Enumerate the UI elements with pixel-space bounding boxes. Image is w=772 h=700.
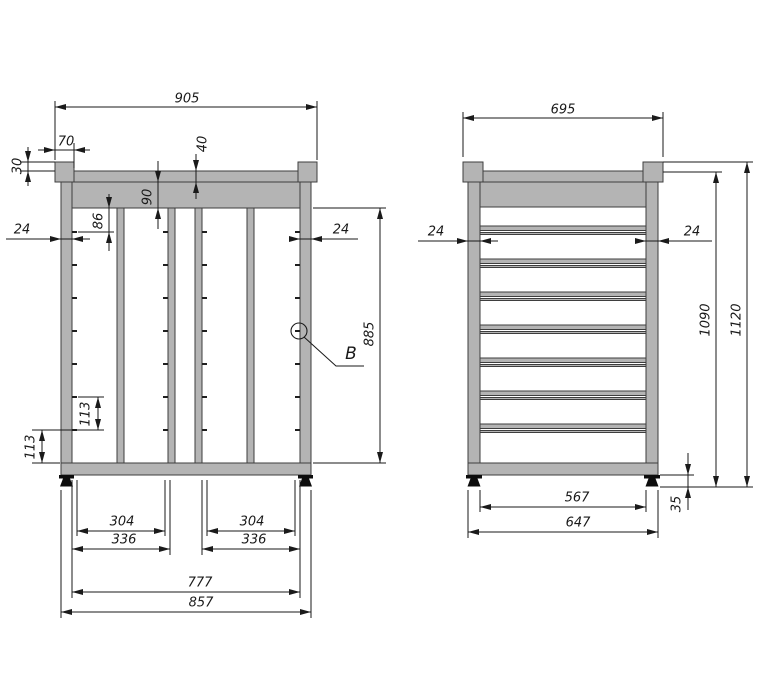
hook-tick	[295, 330, 300, 332]
hook-tick	[295, 396, 300, 398]
rung-lip	[480, 233, 646, 235]
hook-tick	[163, 330, 168, 332]
front-bottom-rail	[61, 463, 311, 475]
dim-label: 885	[363, 322, 378, 347]
dim-label: 24	[684, 225, 701, 240]
hook-tick	[72, 264, 77, 266]
dim-label: 857	[189, 596, 215, 611]
dim-label: 777	[188, 576, 214, 591]
hook-tick	[202, 330, 207, 332]
front-cap-right	[298, 162, 317, 182]
front-cap-left	[55, 162, 74, 182]
dim-label: 90	[141, 189, 156, 206]
dim-30: 30	[11, 147, 56, 186]
side-view	[463, 162, 663, 487]
front-top-rail	[74, 171, 298, 182]
dim-label: 24	[333, 223, 350, 238]
hook-tick	[295, 264, 300, 266]
hook-tick	[202, 363, 207, 365]
front-post-right	[300, 182, 311, 463]
detail-label: B	[345, 344, 357, 364]
rung-lip	[480, 266, 646, 268]
side-foot-left	[466, 475, 482, 487]
dim-695: 695	[463, 103, 663, 158]
hook-tick	[163, 396, 168, 398]
hook-tick	[163, 297, 168, 299]
front-slat-4	[247, 208, 254, 463]
hook-tick	[202, 231, 207, 233]
rung-bar	[480, 358, 646, 363]
dim-label: 1120	[730, 303, 745, 336]
rungs	[480, 226, 646, 433]
front-header-panel	[72, 182, 300, 208]
side-cap-right	[643, 162, 663, 182]
hook-tick	[72, 363, 77, 365]
rung-lip	[480, 299, 646, 301]
rung-lip	[480, 398, 646, 400]
side-post-right	[646, 182, 658, 463]
dim-label: 24	[428, 225, 445, 240]
dim-label: 30	[11, 158, 26, 175]
front-slat-3	[195, 208, 202, 463]
hook-tick	[163, 363, 168, 365]
rung-lip	[480, 365, 646, 367]
dim-567: 567	[480, 490, 646, 512]
dim-336-left: 336	[72, 480, 170, 598]
dim-304-left: 304	[77, 480, 165, 536]
rung-bar	[480, 259, 646, 264]
dim-35: 35	[660, 453, 694, 512]
dim-label: 86	[92, 213, 107, 230]
hook-tick	[202, 396, 207, 398]
dim-336-right: 336	[202, 480, 300, 598]
rung-lip	[480, 431, 646, 433]
hook-tick	[163, 429, 168, 431]
hook-tick	[202, 297, 207, 299]
dim-label: 304	[240, 515, 265, 530]
dim-label: 40	[196, 136, 211, 153]
hook-tick	[295, 231, 300, 233]
dim-label: 70	[58, 135, 75, 150]
dim-1090: 1090	[663, 172, 722, 487]
dim-304-right: 304	[207, 480, 295, 536]
hook-tick	[72, 297, 77, 299]
hook-tick	[295, 429, 300, 431]
dim-label: 113	[24, 435, 39, 460]
dim-label: 647	[566, 516, 592, 531]
dim-885: 885	[313, 208, 386, 463]
hook-ticks	[72, 231, 300, 431]
side-bottom-rail	[468, 463, 658, 475]
dim-857: 857	[61, 490, 311, 618]
dim-label: 304	[110, 515, 135, 530]
dim-label: 567	[565, 491, 591, 506]
rung-bar	[480, 325, 646, 330]
hook-tick	[295, 297, 300, 299]
dim-label: 1090	[699, 303, 714, 336]
dim-777: 777	[72, 576, 300, 593]
dim-905: 905	[55, 92, 317, 161]
dim-24-left: 24	[6, 223, 90, 240]
hook-tick	[72, 231, 77, 233]
side-header-panel	[480, 182, 646, 207]
hook-tick	[202, 264, 207, 266]
dim-label: 113	[79, 402, 94, 427]
dim-label: 336	[112, 533, 137, 548]
rung-bar	[480, 292, 646, 297]
hook-tick	[295, 363, 300, 365]
dim-label: 336	[242, 533, 267, 548]
hook-tick	[202, 429, 207, 431]
side-foot-right	[644, 475, 660, 487]
dim-113-upper: 113	[78, 397, 104, 430]
hook-tick	[72, 396, 77, 398]
rung-bar	[480, 226, 646, 231]
technical-drawing: B 905 70 30 40	[0, 0, 772, 700]
rung-lip	[480, 332, 646, 334]
dim-647: 647	[468, 490, 658, 538]
front-slat-2	[168, 208, 175, 463]
hook-tick	[72, 330, 77, 332]
dim-label: 905	[175, 92, 200, 107]
side-top-rail	[483, 171, 643, 182]
side-cap-left	[463, 162, 483, 182]
front-slat-1	[117, 208, 124, 463]
dim-label: 35	[670, 496, 685, 513]
side-post-left	[468, 182, 480, 463]
rung-bar	[480, 391, 646, 396]
front-view	[55, 162, 317, 487]
front-post-left	[61, 182, 72, 463]
rung-bar	[480, 424, 646, 429]
dim-label: 24	[14, 223, 31, 238]
dim-label: 695	[551, 103, 576, 118]
hook-tick	[163, 264, 168, 266]
hook-tick	[163, 231, 168, 233]
